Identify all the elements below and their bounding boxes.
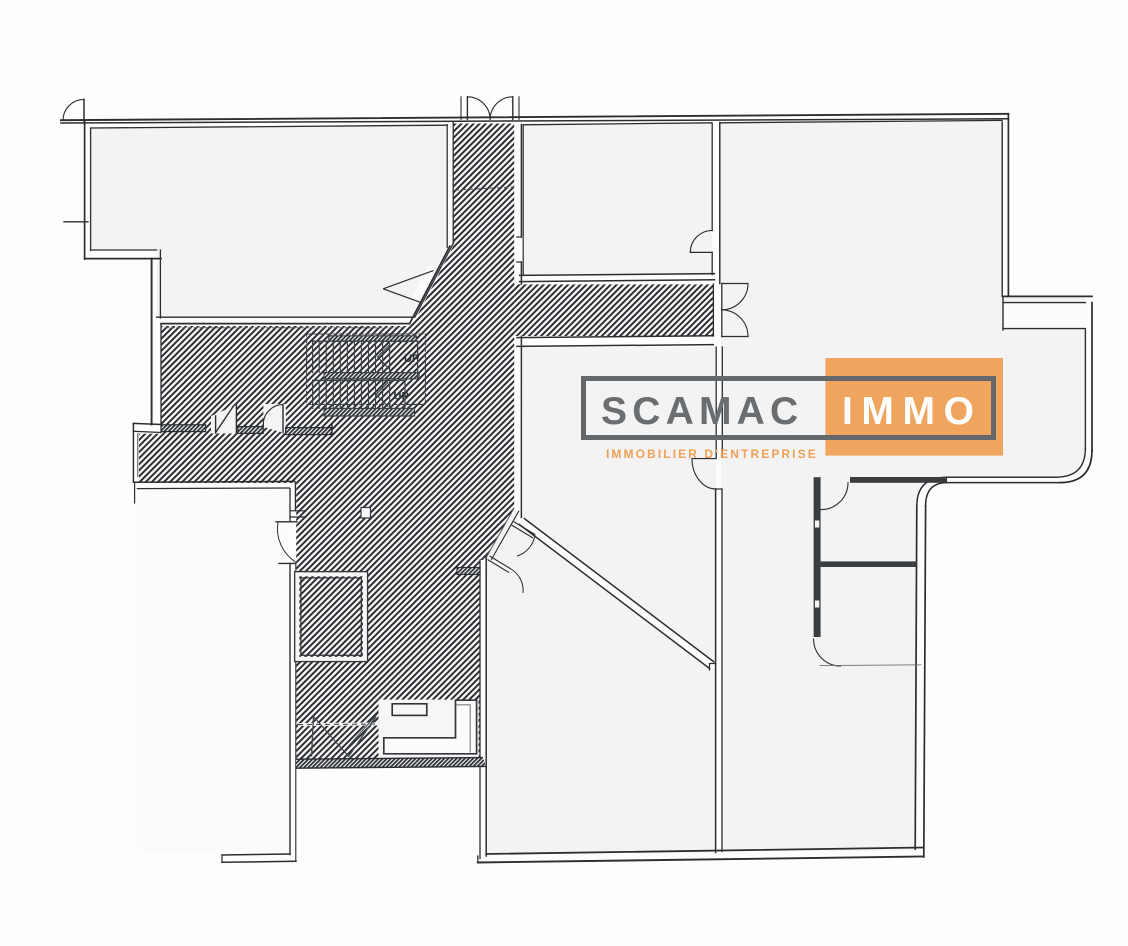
svg-text:UP: UP (404, 353, 419, 365)
svg-text:IMMO: IMMO (842, 390, 983, 433)
svg-text:IMMOBILIER D'ENTREPRISE: IMMOBILIER D'ENTREPRISE (606, 447, 818, 461)
svg-text:SCAMAC: SCAMAC (601, 390, 803, 433)
svg-text:UP: UP (394, 391, 409, 403)
